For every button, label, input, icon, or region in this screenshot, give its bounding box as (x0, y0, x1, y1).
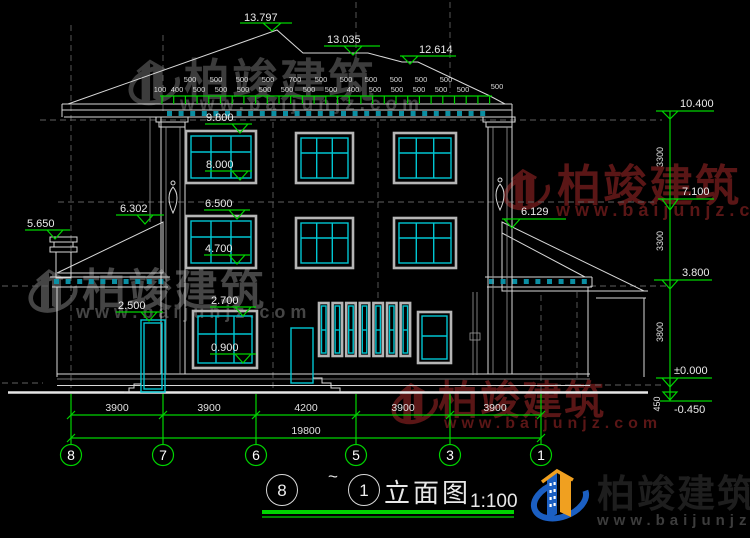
dim-label: 4200 (294, 402, 318, 414)
brand-footer: 柏竣建筑 www.baijunjz.com (529, 471, 750, 529)
brand-logo-icon (26, 271, 80, 316)
roof-dim: 500 (236, 75, 249, 84)
elevation-label: 2.500 (118, 300, 146, 312)
left-pilaster (156, 117, 188, 374)
grid-bubble-label: 3 (446, 447, 454, 463)
roof-dim: 500 (315, 75, 328, 84)
dim-label: 3900 (197, 402, 221, 414)
roof-dim: 500 (325, 85, 338, 94)
dim-label: 3900 (483, 402, 507, 414)
elevation-label: 6.500 (205, 198, 233, 210)
slit-window (387, 303, 397, 356)
title-scale: 1:100 (470, 491, 518, 512)
elevation-label: 5.650 (27, 218, 55, 230)
elevation-label: 6.302 (120, 203, 148, 215)
brand-logo-icon (529, 471, 591, 525)
grid-bubbles: 8 7 6 5 3 1 (61, 445, 552, 466)
title-bubble-left: 8 (277, 481, 286, 500)
elevation-label: 3.800 (682, 267, 710, 279)
elevation-label: 6.129 (521, 206, 549, 218)
roof-dim: 500 (184, 75, 197, 84)
vertical-dim: 3300 (655, 147, 665, 167)
title-separator: ~ (328, 467, 338, 486)
cad-elevation-canvas: 柏竣建筑 www.baijunjz.com 柏竣建筑 www.baijunjz.… (0, 0, 750, 538)
grid-bubble-label: 1 (537, 447, 545, 463)
right-elevation-column: 10.400 7.100 3.800 ±0.000 -0.450 3300 33… (652, 98, 714, 416)
window (186, 216, 256, 268)
roof-dim: 500 (369, 85, 382, 94)
title-name: 立面图 (384, 478, 471, 508)
window (296, 218, 353, 268)
slit-window (346, 303, 356, 356)
slit-window (373, 303, 383, 356)
roof-dim: 500 (440, 75, 453, 84)
elevation-label: 9.800 (206, 112, 234, 124)
roof-dim: 100 (154, 85, 167, 94)
pilaster-finial (169, 187, 177, 213)
window (394, 133, 456, 183)
elevation-label: 0.900 (211, 342, 239, 354)
window (186, 131, 256, 183)
floor3-windows (186, 131, 456, 183)
slit-window (360, 303, 370, 356)
slit-window (333, 303, 343, 356)
roof-dim: 500 (262, 75, 275, 84)
grid-bubble-label: 7 (159, 447, 167, 463)
roof-dim: 500 (259, 85, 272, 94)
slit-window-group (319, 303, 410, 356)
roof-dim: 500 (457, 85, 470, 94)
window (296, 133, 353, 183)
roof-dim: 400 (347, 85, 360, 94)
roof-dim: 500 (237, 85, 250, 94)
roof-dim: 500 (415, 75, 428, 84)
roof-dim: 400 (171, 85, 184, 94)
elevation-label: 4.700 (205, 243, 233, 255)
elevation-label: 13.797 (244, 12, 278, 24)
roof-dim: 500 (210, 75, 223, 84)
watermark-left: 柏竣建筑 www.baijunjz.com (26, 266, 311, 322)
right-pilaster (483, 117, 515, 374)
brand-name: 柏竣建筑 (597, 474, 750, 516)
chimney (50, 237, 77, 278)
elevation-label: -0.450 (674, 404, 705, 416)
vertical-dim: 3300 (655, 231, 665, 251)
elevation-label: 7.100 (682, 186, 710, 198)
roof-dim: 500 (491, 82, 504, 91)
roof-dim: 500 (281, 85, 294, 94)
total-dim-label: 19800 (291, 425, 320, 437)
grid-bubble-label: 8 (67, 447, 75, 463)
dim-label: 3900 (391, 402, 415, 414)
window (394, 218, 456, 268)
elevation-label: ±0.000 (674, 365, 708, 377)
roof-dim: 500 (391, 85, 404, 94)
grid-bubble-label: 6 (252, 447, 260, 463)
roof-dim: 500 (390, 75, 403, 84)
window (418, 312, 451, 363)
elevation-label: 13.035 (327, 34, 361, 46)
elevation-label: 10.400 (680, 98, 714, 110)
title-bubble-right: 1 (359, 481, 368, 500)
roof-dim: 500 (435, 85, 448, 94)
roof-dim: 500 (303, 85, 316, 94)
watermark-site: www.baijunjz.com (443, 415, 662, 432)
brand-site: www.baijunjz.com (596, 512, 750, 529)
vertical-dim: 3800 (655, 322, 665, 342)
roof-dim: 500 (215, 85, 228, 94)
roof-dim: 700 (289, 75, 302, 84)
drawing-title: 8 ~ 1 立面图 1:100 (262, 467, 518, 517)
pilaster-finial (496, 184, 504, 210)
roof-dim: 500 (413, 85, 426, 94)
floor2-windows (186, 216, 456, 268)
right-wing-roof (485, 222, 648, 298)
downspout (470, 292, 480, 375)
watermark-bottom: 柏竣建筑 www.baijunjz.com (389, 379, 662, 432)
roof-dim: 500 (193, 85, 206, 94)
roof-dim: 500 (365, 75, 378, 84)
title-underline (262, 510, 514, 514)
watermark-site: www.baijunjz.com (555, 200, 750, 220)
side-door (124, 320, 165, 392)
roof-dim: 500 (340, 75, 353, 84)
slit-window (319, 303, 329, 356)
elevation-label: 8.000 (206, 159, 234, 171)
vertical-dim: 450 (652, 396, 662, 411)
grid-bubble-label: 5 (352, 447, 360, 463)
dim-label: 3900 (105, 402, 129, 414)
slit-window (401, 303, 411, 356)
elevation-drawing: 柏竣建筑 www.baijunjz.com 柏竣建筑 www.baijunjz.… (0, 0, 750, 538)
left-elevation-markers: 5.650 6.302 (25, 203, 164, 239)
elevation-label: 12.614 (419, 44, 453, 56)
elevation-label: 2.700 (211, 295, 239, 307)
